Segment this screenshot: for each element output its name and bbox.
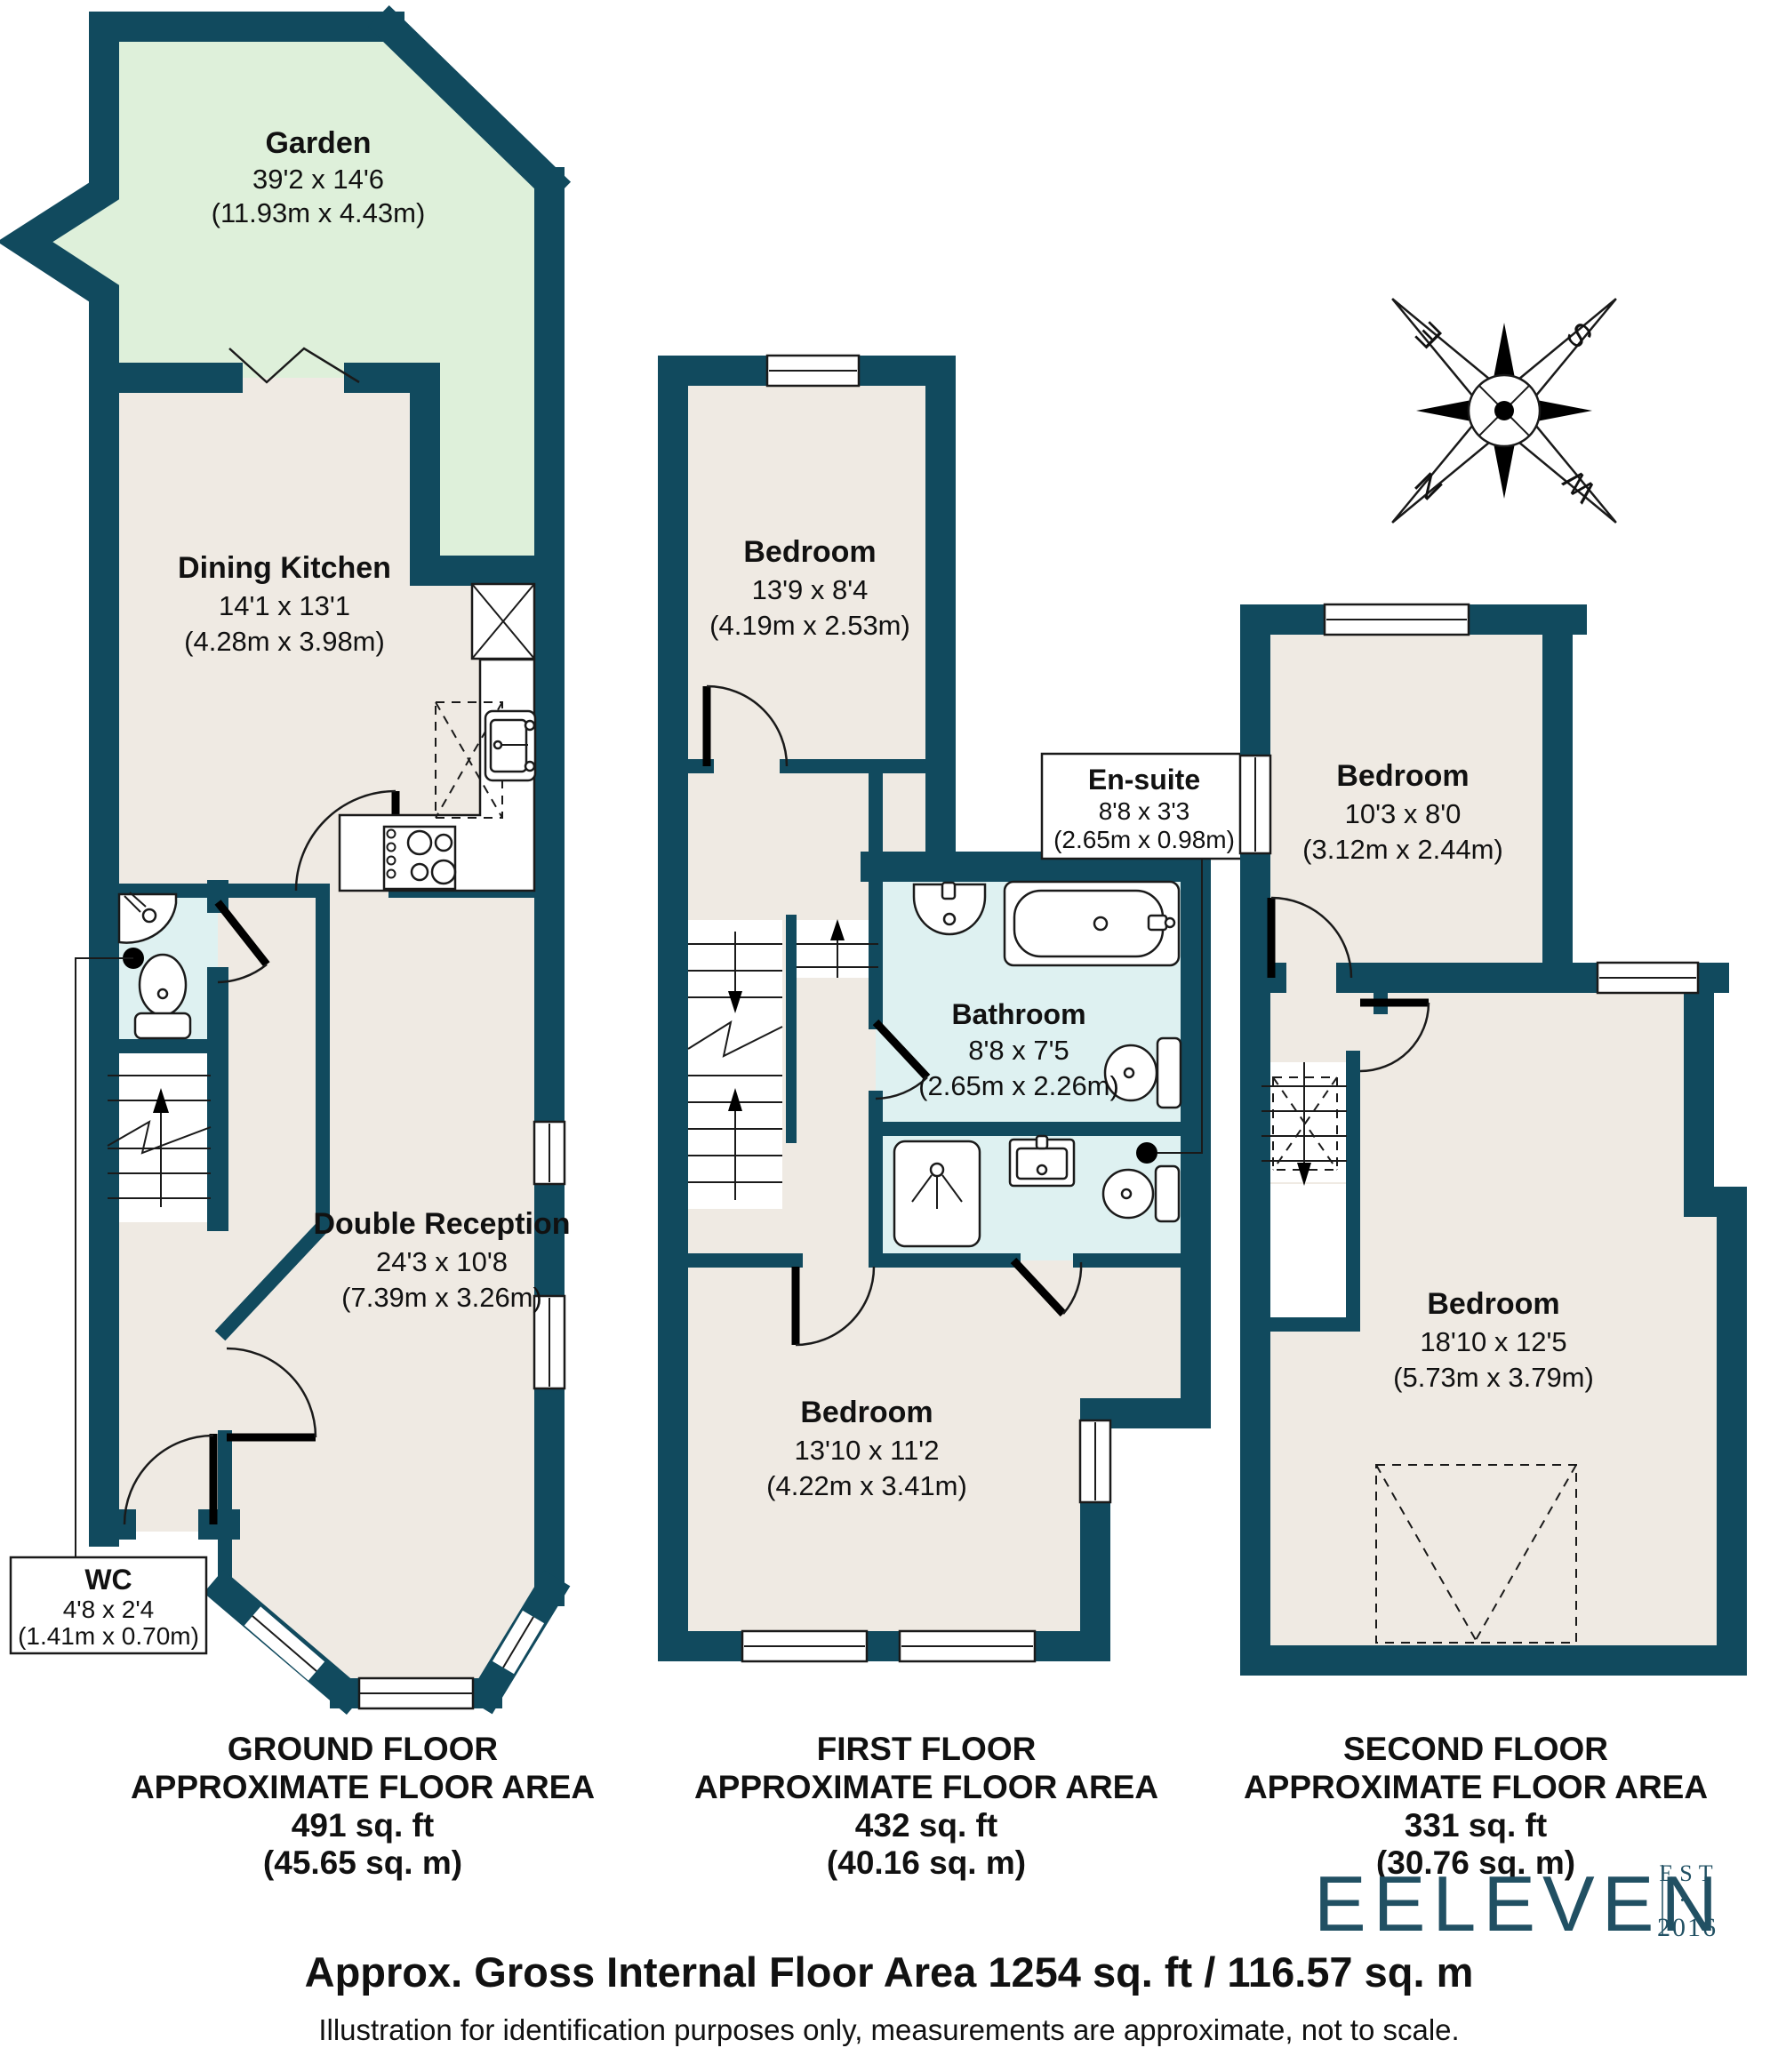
garden-dimensions-metric: (11.93m x 4.43m)	[212, 197, 426, 228]
ff-rear-bedroom-dimensions-imperial: 13'9 x 8'4	[752, 574, 869, 605]
gross-internal-area-text: Approx. Gross Internal Floor Area 1254 s…	[305, 1948, 1474, 1996]
wc-dimensions-imperial: 4'8 x 2'4	[63, 1596, 155, 1623]
dining-kitchen-label: Dining Kitchen	[178, 551, 391, 585]
first-floor-sqft: 432 sq. ft	[855, 1807, 997, 1844]
wc-dimensions-metric: (1.41m x 0.70m)	[18, 1622, 199, 1650]
kitchen-sink-fixture	[485, 711, 535, 780]
second-floor-stairwell-void	[1261, 1184, 1347, 1317]
sf-rear-bedroom-dimensions-imperial: 10'3 x 8'0	[1345, 798, 1462, 829]
ground-floor-caption: GROUND FLOOR APPROXIMATE FLOOR AREA 491 …	[131, 1731, 595, 1881]
agency-logo: EELEVEN EST · 2016	[1314, 1860, 1725, 1948]
sf-front-bedroom-dimensions-imperial: 18'10 x 12'5	[1420, 1326, 1566, 1357]
ground-floor-sqft: 491 sq. ft	[292, 1807, 434, 1844]
wc-label: WC	[84, 1564, 132, 1596]
sf-left-window	[1240, 756, 1270, 853]
garden-label: Garden	[265, 126, 371, 160]
logo-est-dot: ·	[1678, 1887, 1693, 1913]
front-bedroom-window-left	[742, 1631, 867, 1661]
first-floor-caption: FIRST FLOOR APPROXIMATE FLOOR AREA 432 s…	[694, 1731, 1158, 1881]
dining-kitchen-dimensions-metric: (4.28m x 3.98m)	[184, 626, 385, 657]
second-floor-sqft: 331 sq. ft	[1405, 1807, 1547, 1844]
kitchen-hob-fixture	[384, 827, 455, 889]
ground-floor-title: GROUND FLOOR	[228, 1731, 498, 1767]
wc-label-box: WC 4'8 x 2'4 (1.41m x 0.70m)	[11, 1557, 206, 1653]
ff-rear-bedroom-dimensions-metric: (4.19m x 2.53m)	[709, 610, 910, 641]
sf-front-bedroom-label: Bedroom	[1427, 1287, 1559, 1321]
ff-front-bedroom-dimensions-imperial: 13'10 x 11'2	[795, 1435, 940, 1466]
ground-floor-area-label: APPROXIMATE FLOOR AREA	[131, 1769, 595, 1805]
ff-rear-bedroom-label: Bedroom	[743, 535, 876, 569]
double-reception-dimensions-imperial: 24'3 x 10'8	[376, 1246, 508, 1277]
en-suite-marker-dot	[1136, 1142, 1157, 1164]
en-suite-dimensions-imperial: 8'8 x 3'3	[1099, 797, 1190, 825]
en-suite-label: En-suite	[1088, 764, 1200, 796]
ground-floor-sqm: (45.65 sq. m)	[263, 1844, 462, 1881]
dining-kitchen-dimensions-imperial: 14'1 x 13'1	[219, 590, 350, 621]
garden-dimensions-imperial: 39'2 x 14'6	[252, 164, 384, 195]
ff-front-bedroom-dimensions-metric: (4.22m x 3.41m)	[766, 1470, 967, 1501]
disclaimer-text: Illustration for identification purposes…	[318, 2013, 1459, 2046]
first-floor-sqm: (40.16 sq. m)	[827, 1844, 1026, 1881]
en-suite-dimensions-metric: (2.65m x 0.98m)	[1053, 826, 1235, 853]
ground-floor-plan: WC 4'8 x 2'4 (1.41m x 0.70m) Garden 39'2…	[11, 27, 595, 1881]
second-floor-caption: SECOND FLOOR APPROXIMATE FLOOR AREA 331 …	[1244, 1731, 1708, 1881]
en-suite-sink-fixture	[1010, 1136, 1074, 1186]
sf-step-window	[1598, 963, 1698, 993]
en-suite-label-box: En-suite 8'8 x 3'3 (2.65m x 0.98m)	[1042, 754, 1246, 859]
bath-fixture	[1005, 882, 1179, 965]
wc-toilet-fixture	[135, 955, 190, 1038]
front-bedroom-side-window	[1080, 1420, 1110, 1502]
ff-front-bedroom-label: Bedroom	[800, 1396, 933, 1429]
logo-year-label: 2016	[1657, 1913, 1718, 1942]
sf-rear-bedroom-window	[1325, 604, 1469, 635]
sf-rear-bedroom-dimensions-metric: (3.12m x 2.44m)	[1302, 834, 1503, 865]
bathroom-dimensions-imperial: 8'8 x 7'5	[968, 1035, 1069, 1066]
first-floor-title: FIRST FLOOR	[817, 1731, 1037, 1767]
second-floor-area-label: APPROXIMATE FLOOR AREA	[1244, 1769, 1708, 1805]
compass-rose-icon: N E S W	[1280, 187, 1727, 634]
double-reception-dimensions-metric: (7.39m x 3.26m)	[341, 1282, 542, 1313]
sf-rear-bedroom-label: Bedroom	[1336, 759, 1469, 793]
logo-est-label: EST	[1659, 1860, 1718, 1886]
shower-fixture	[894, 1141, 980, 1246]
kitchen-unit-icon	[472, 584, 534, 659]
sf-front-bedroom-dimensions-metric: (5.73m x 3.79m)	[1393, 1362, 1594, 1393]
bathroom-dimensions-metric: (2.65m x 2.26m)	[918, 1070, 1119, 1101]
floor-plan-svg: WC 4'8 x 2'4 (1.41m x 0.70m) Garden 39'2…	[0, 0, 1778, 2072]
en-suite-toilet-fixture	[1103, 1166, 1179, 1221]
bathroom-label: Bathroom	[951, 998, 1085, 1030]
rear-bedroom-window	[767, 356, 859, 386]
second-floor-plan: Bedroom 10'3 x 8'0 (3.12m x 2.44m) Bedro…	[1240, 604, 1732, 1881]
first-floor-area-label: APPROXIMATE FLOOR AREA	[694, 1769, 1158, 1805]
double-reception-label: Double Reception	[313, 1207, 570, 1241]
first-floor-plan: En-suite 8'8 x 3'3 (2.65m x 0.98m) Bedro…	[673, 356, 1246, 1881]
reception-window-right-upper	[534, 1122, 565, 1184]
front-bedroom-window-right	[900, 1631, 1035, 1661]
second-floor-title: SECOND FLOOR	[1343, 1731, 1608, 1767]
